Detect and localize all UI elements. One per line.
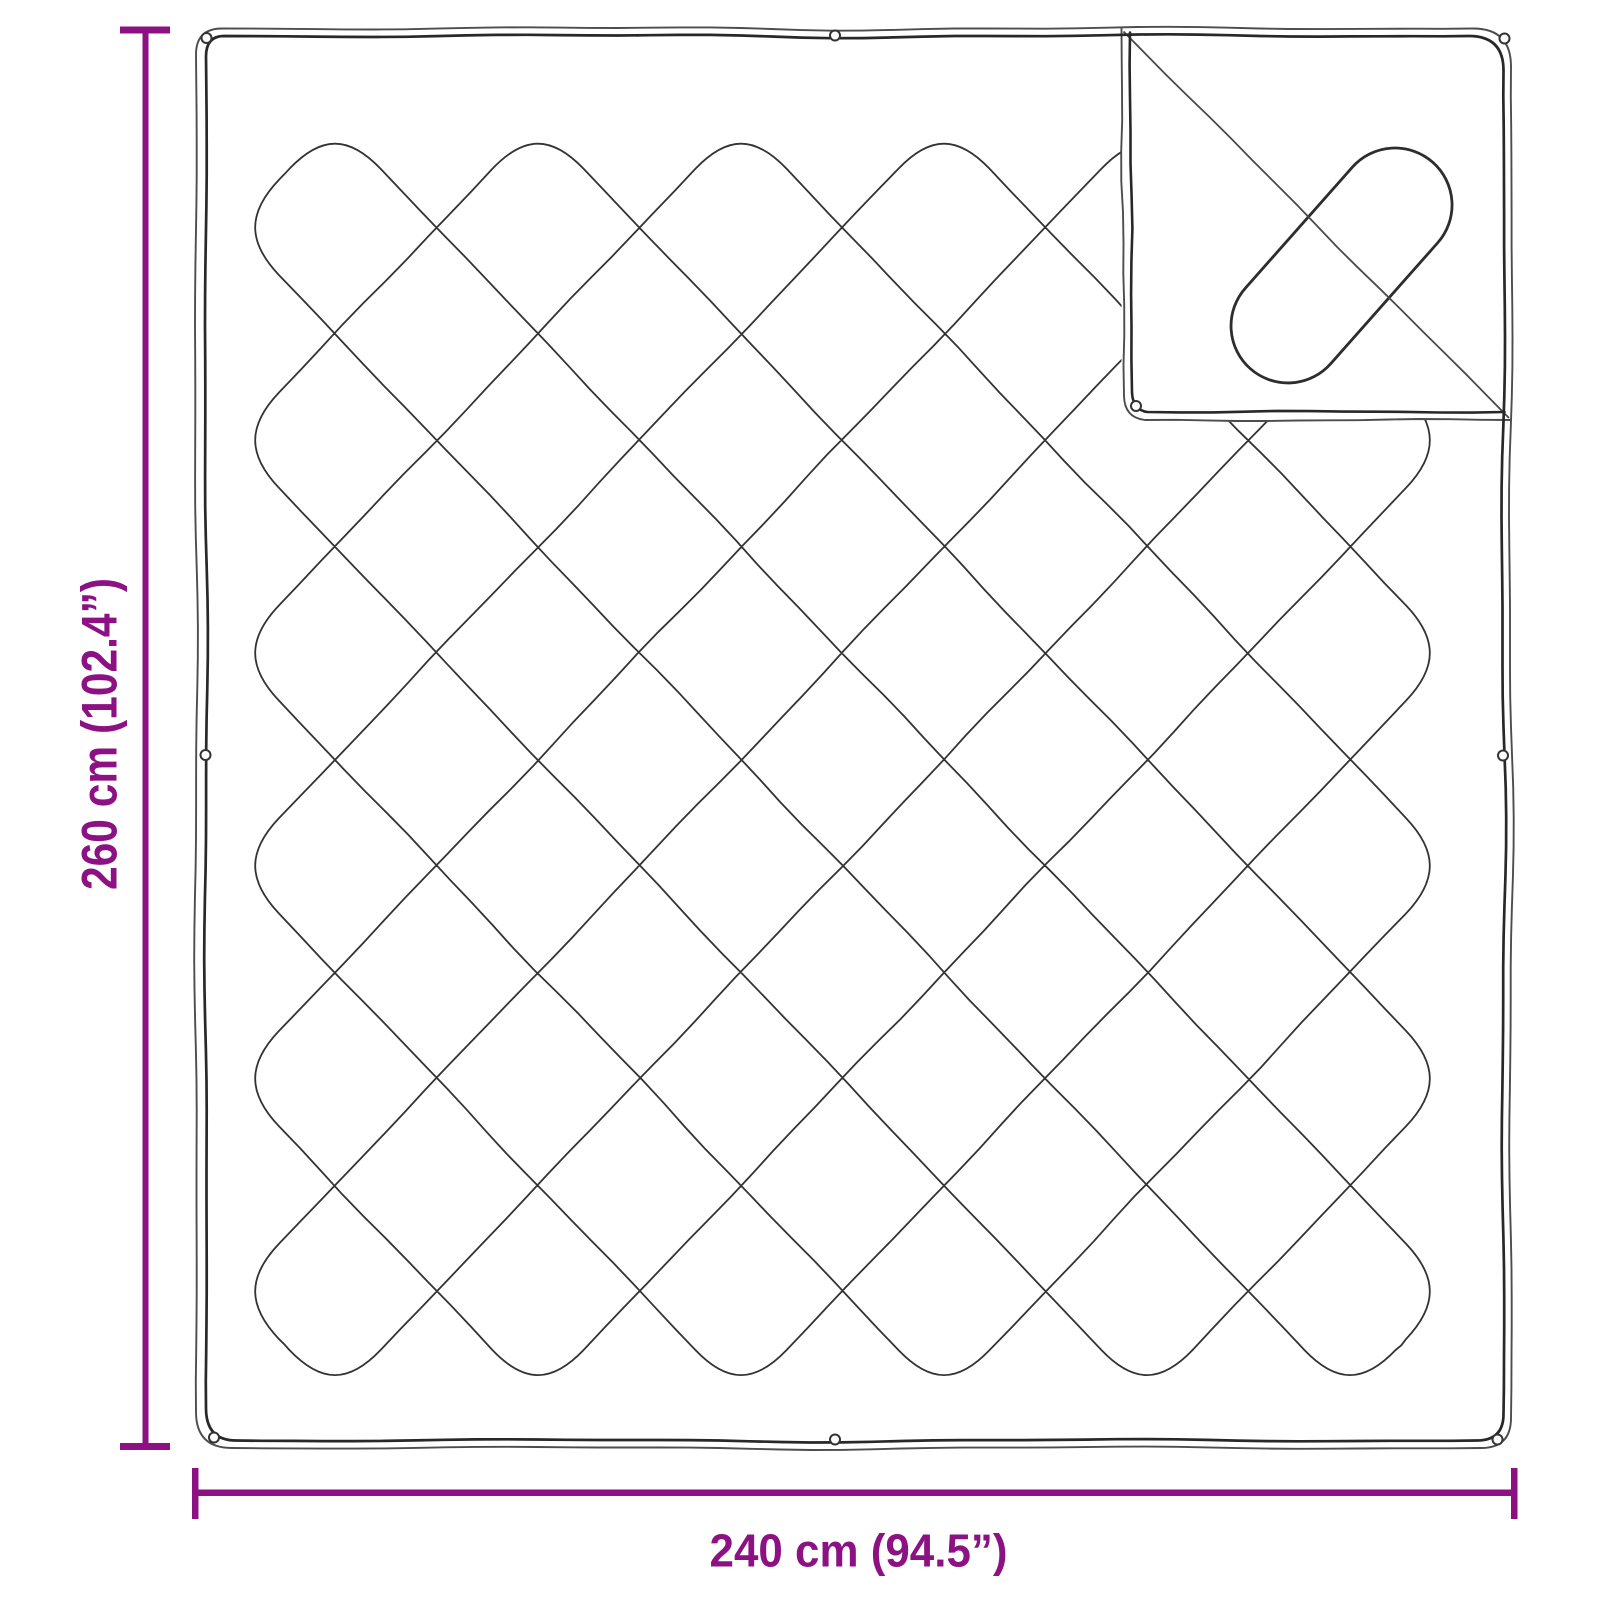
svg-text:240 cm (94.5”): 240 cm (94.5”) <box>710 1525 1008 1577</box>
svg-text:260 cm (102.4”): 260 cm (102.4”) <box>72 578 128 890</box>
